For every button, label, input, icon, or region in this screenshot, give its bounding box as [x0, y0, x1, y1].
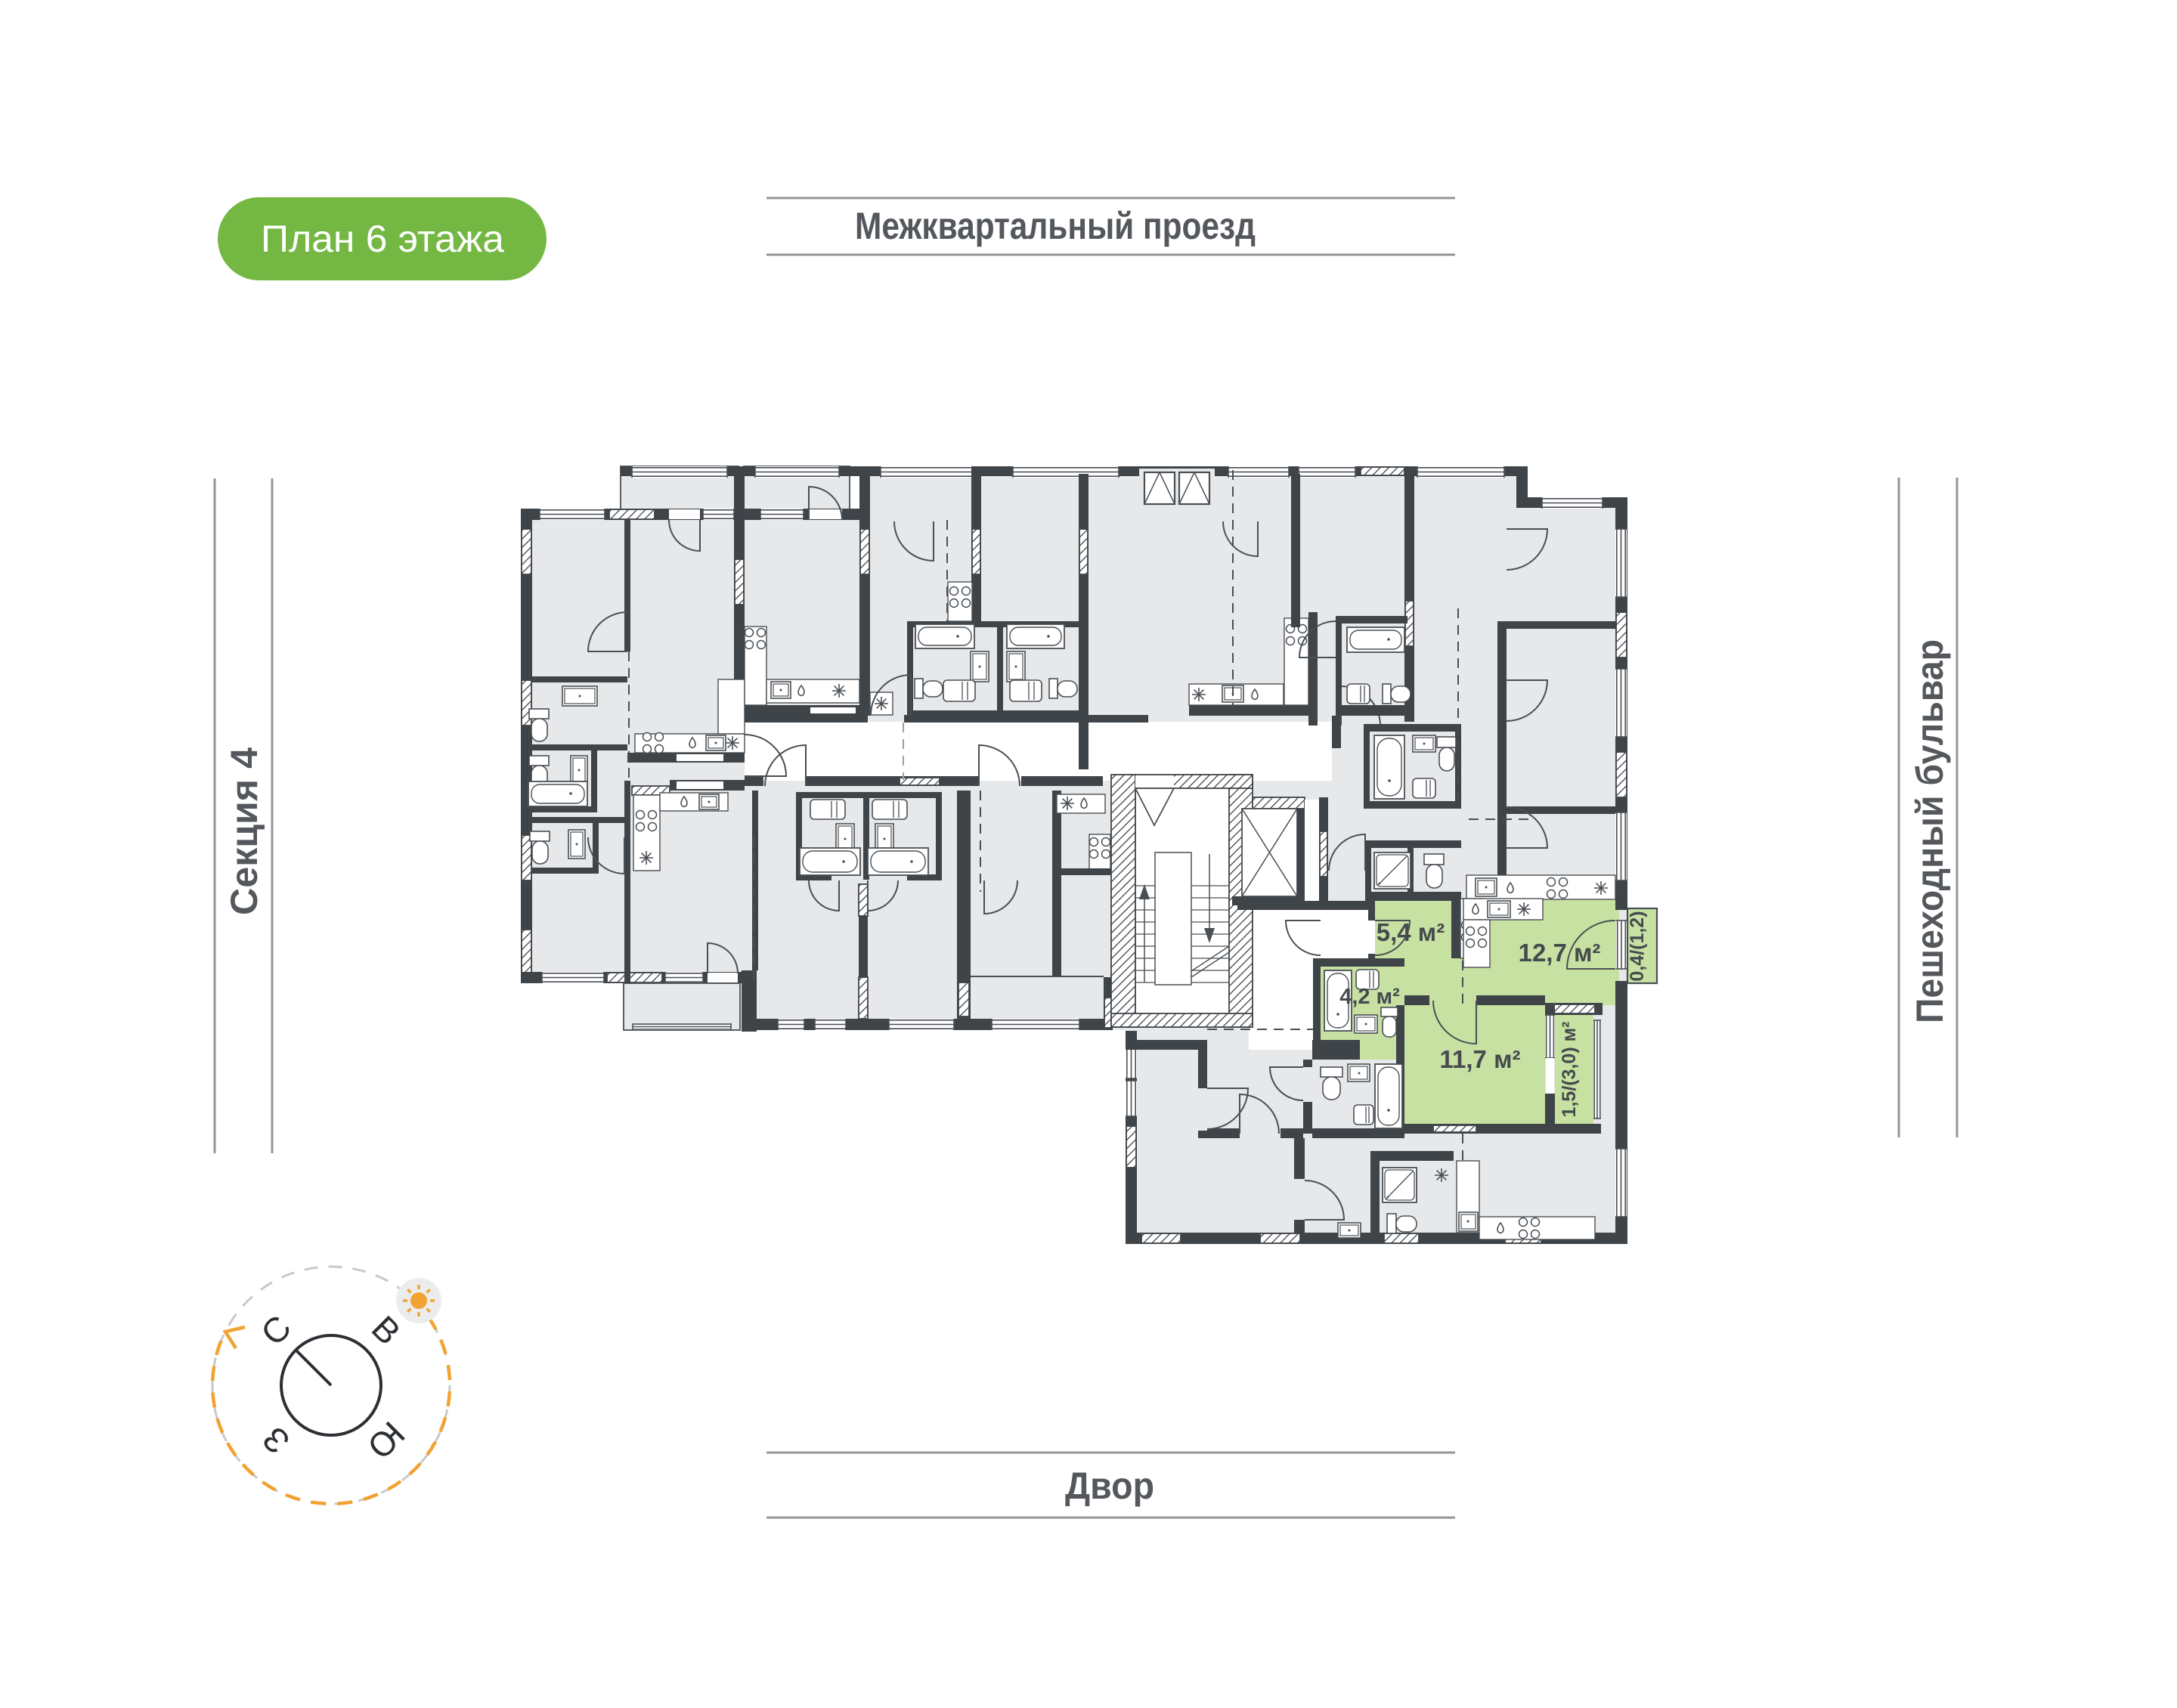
svg-text:4,2 м²: 4,2 м²: [1339, 985, 1400, 1009]
svg-text:План 6 этажа: План 6 этажа: [261, 218, 504, 260]
svg-text:5,4 м²: 5,4 м²: [1376, 918, 1445, 946]
svg-text:Двор: Двор: [1065, 1465, 1154, 1507]
svg-text:0,4/(1,2): 0,4/(1,2): [1627, 911, 1648, 981]
svg-text:Секция 4: Секция 4: [223, 747, 265, 915]
svg-text:11,7 м²: 11,7 м²: [1440, 1045, 1521, 1073]
svg-text:1,5/(3,0) м²: 1,5/(3,0) м²: [1559, 1022, 1580, 1118]
svg-text:Межквартальный проезд: Межквартальный проезд: [855, 205, 1256, 247]
svg-text:Пешеходный бульвар: Пешеходный бульвар: [1909, 639, 1951, 1023]
svg-text:12,7 м²: 12,7 м²: [1519, 939, 1601, 967]
